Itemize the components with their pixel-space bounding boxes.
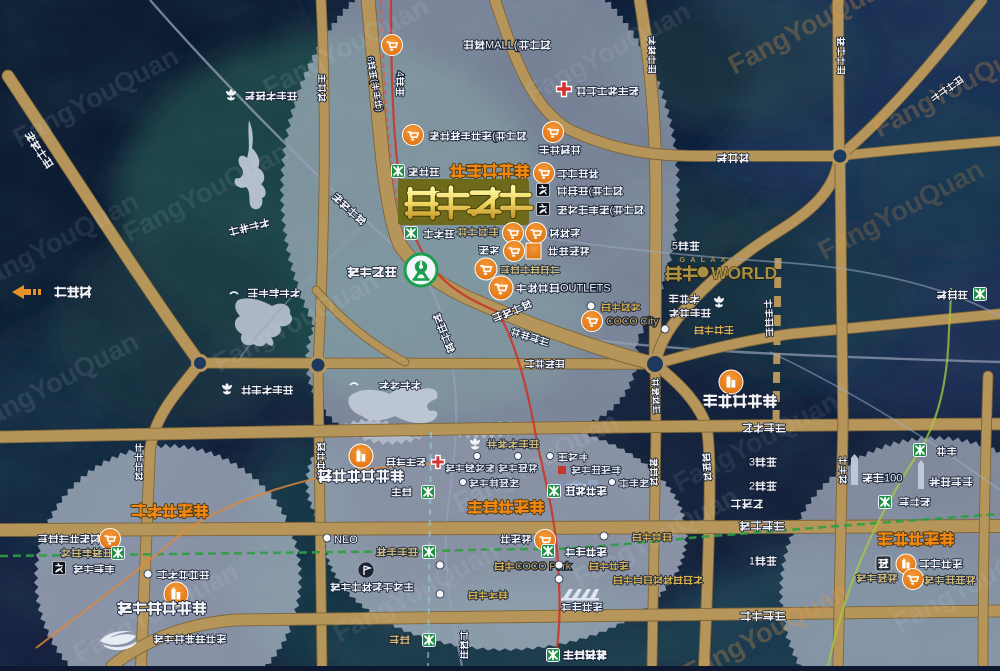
svg-text:(: ( [492, 130, 496, 142]
svg-text:COCO City: COCO City [606, 315, 659, 327]
svg-text:(: ( [589, 185, 593, 197]
svg-text:4: 4 [394, 71, 405, 77]
svg-text:(: ( [610, 204, 614, 216]
svg-text:1: 1 [749, 556, 755, 568]
svg-text:MALL(: MALL( [485, 40, 518, 52]
svg-text:3: 3 [749, 457, 755, 469]
svg-text:5: 5 [672, 241, 678, 253]
svg-text:WORLD: WORLD [711, 263, 777, 283]
svg-text:COCO Park: COCO Park [515, 560, 572, 572]
svg-text:2: 2 [749, 481, 755, 493]
svg-text:100: 100 [884, 473, 902, 485]
svg-text:NEO: NEO [334, 534, 358, 546]
svg-text:OUTLETS: OUTLETS [560, 283, 611, 295]
